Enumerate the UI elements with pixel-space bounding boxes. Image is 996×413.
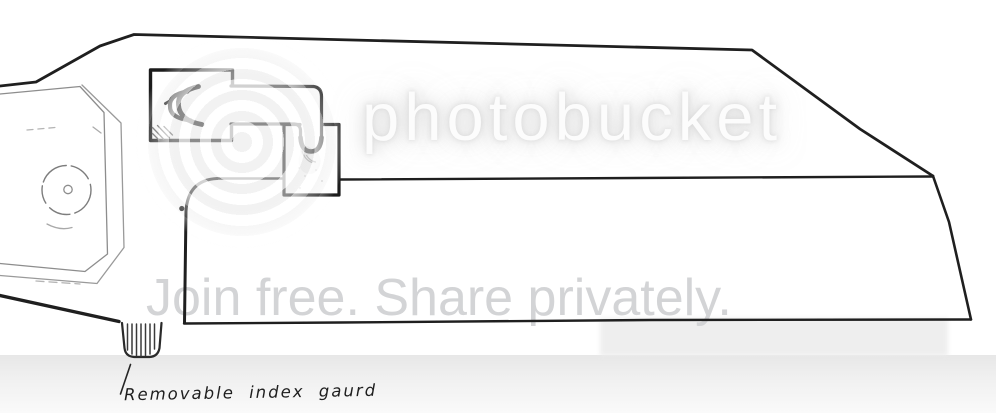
photo-page: { "watermark": { "logo_text": "photobuck… bbox=[0, 0, 996, 413]
screw-hole bbox=[42, 166, 91, 215]
rubber-foot bbox=[122, 323, 162, 357]
photobucket-rings-icon bbox=[92, 0, 392, 292]
